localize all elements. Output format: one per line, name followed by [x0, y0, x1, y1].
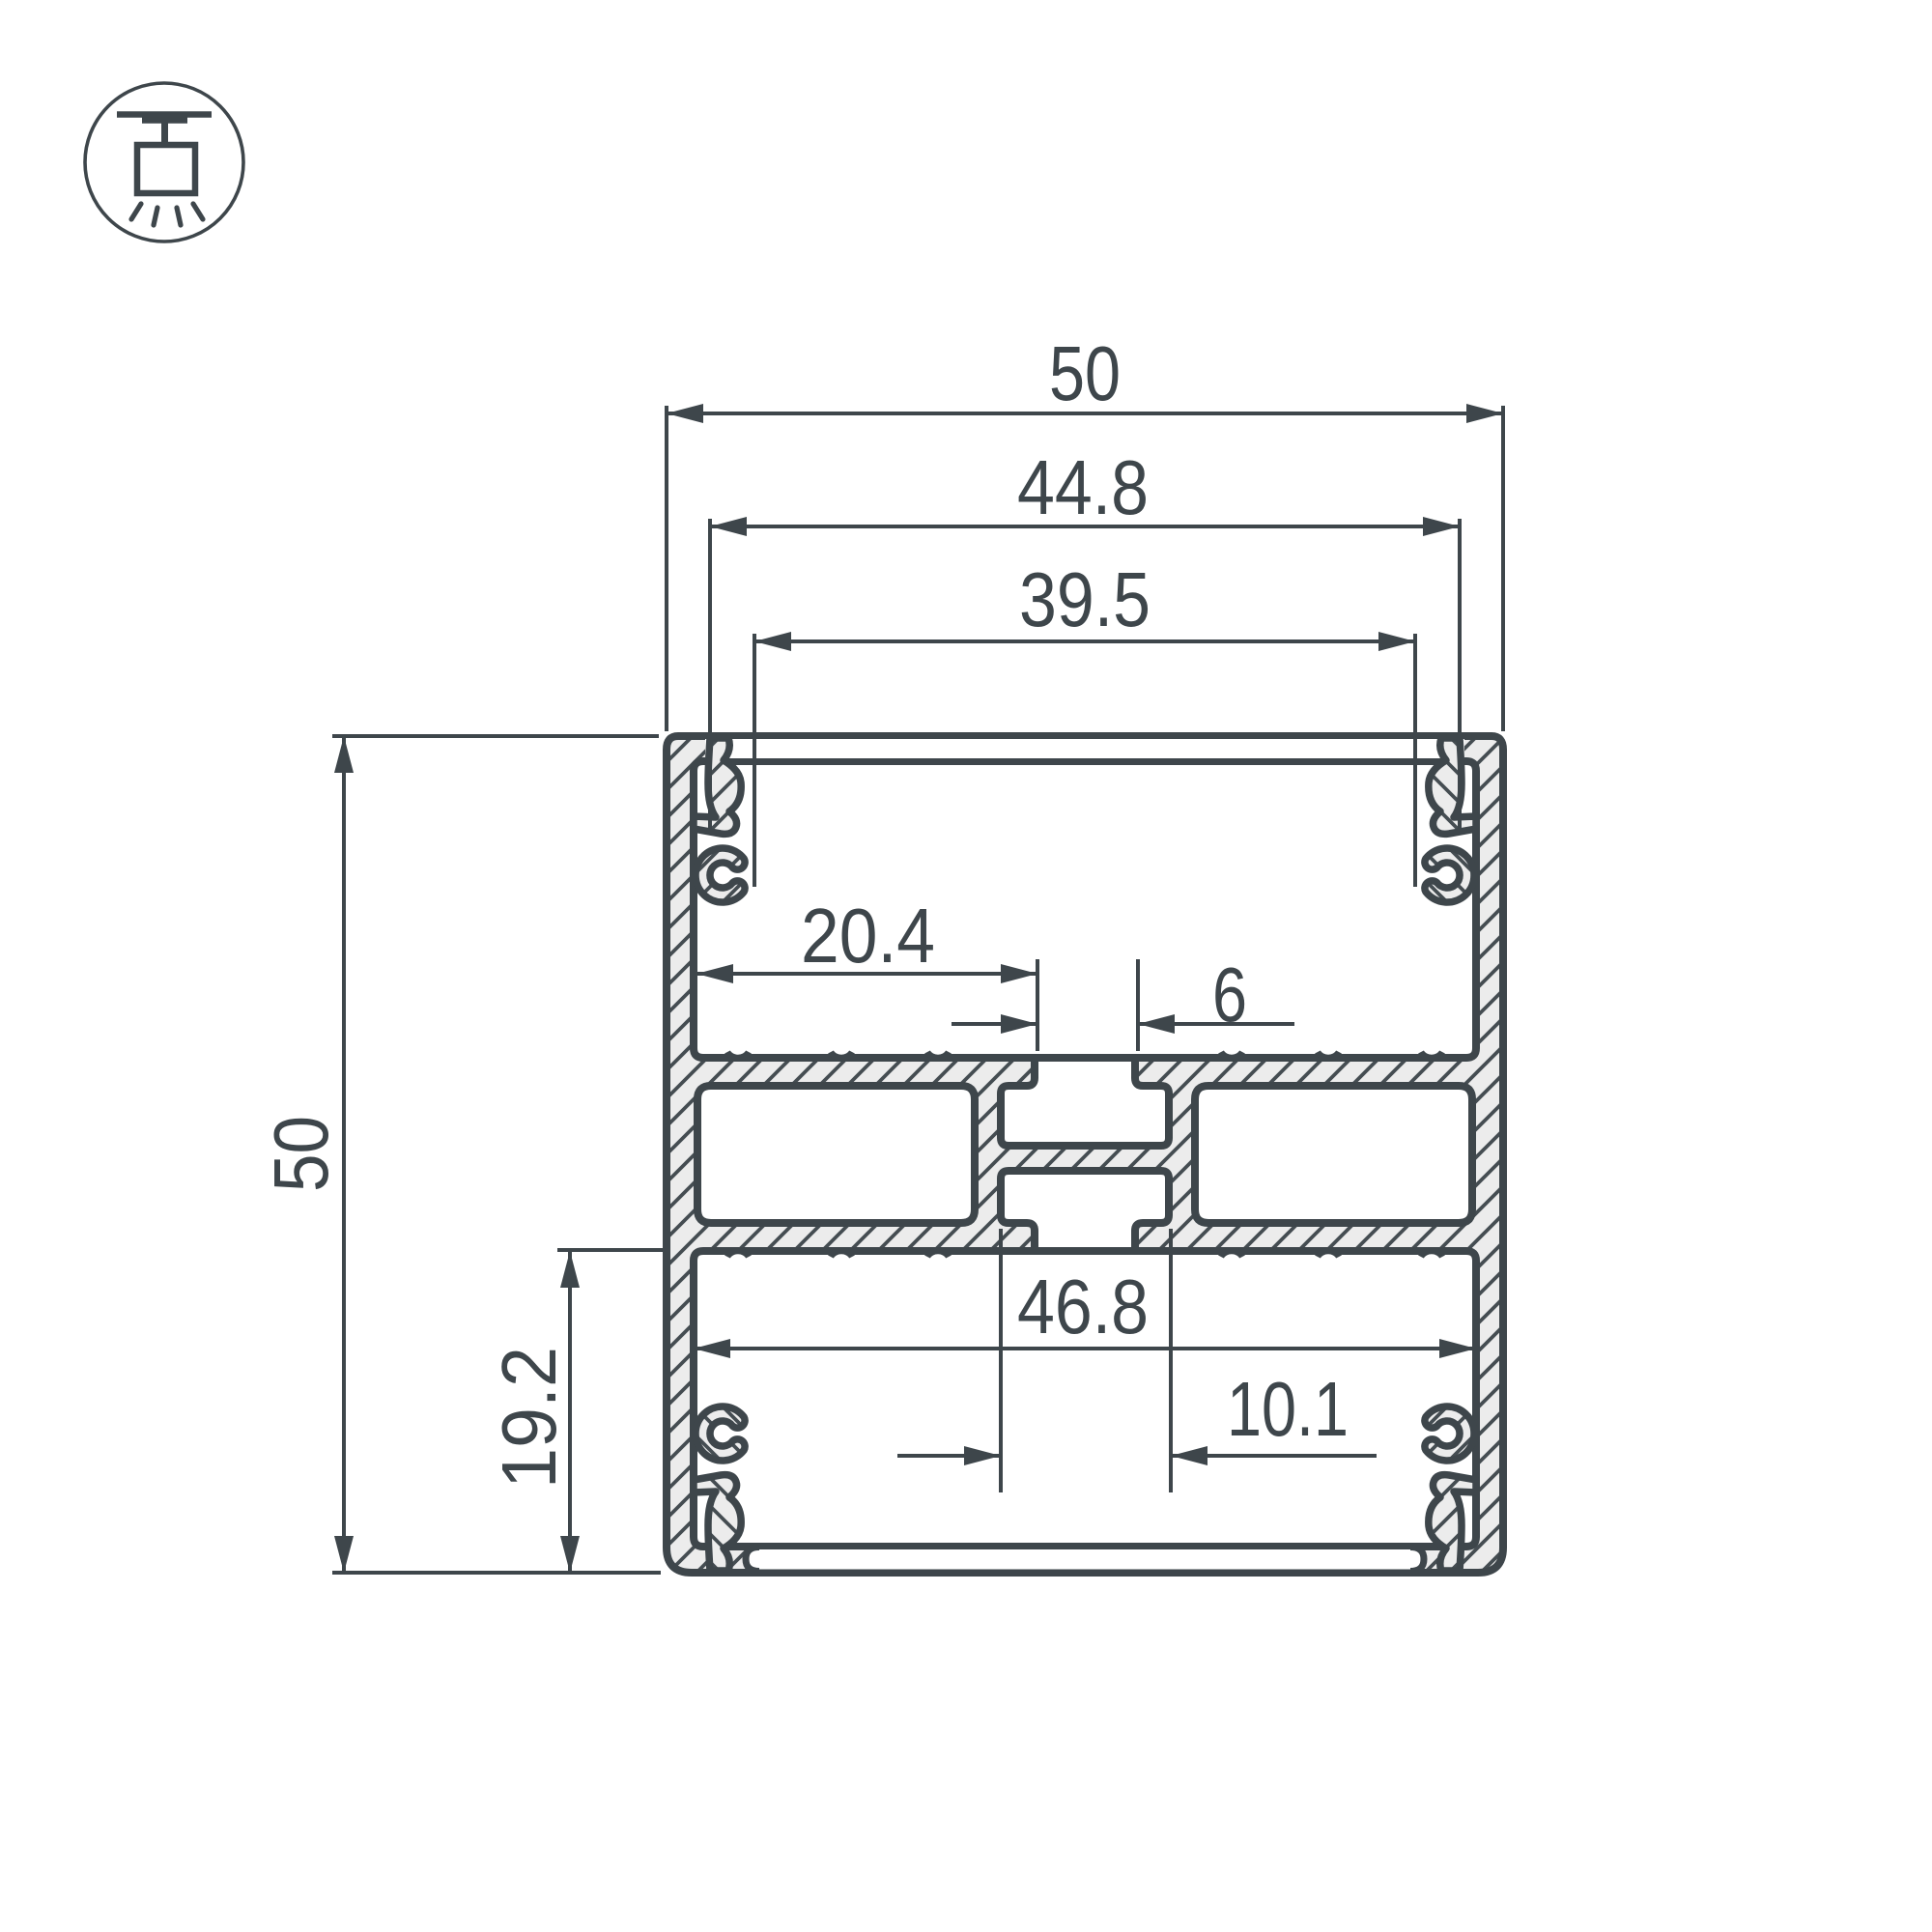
svg-text:39.5: 39.5	[1019, 556, 1151, 642]
svg-text:20.4: 20.4	[801, 893, 935, 979]
svg-text:19.2: 19.2	[486, 1347, 572, 1489]
svg-text:6: 6	[1212, 952, 1247, 1037]
svg-text:50: 50	[1049, 330, 1121, 416]
svg-text:46.8: 46.8	[1017, 1264, 1149, 1350]
svg-text:10.1: 10.1	[1227, 1366, 1349, 1452]
svg-text:50: 50	[258, 1116, 344, 1192]
svg-text:44.8: 44.8	[1017, 444, 1149, 530]
